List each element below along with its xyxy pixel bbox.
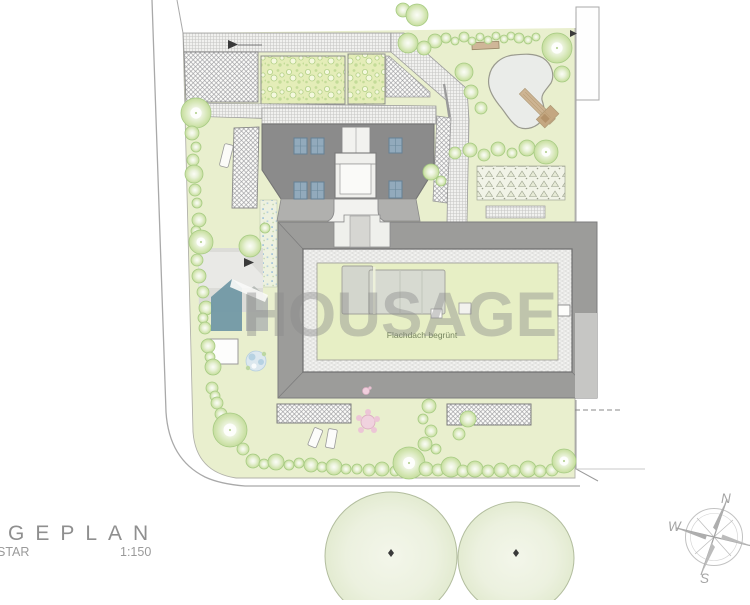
- svg-text:HOUSAGE: HOUSAGE: [243, 280, 557, 350]
- svg-text:STAR: STAR: [0, 545, 29, 559]
- svg-text:1:150: 1:150: [120, 545, 151, 559]
- svg-text:W: W: [668, 519, 682, 534]
- svg-text:S: S: [700, 571, 709, 586]
- svg-text:GEPLAN: GEPLAN: [8, 522, 159, 545]
- svg-text:N: N: [721, 491, 731, 506]
